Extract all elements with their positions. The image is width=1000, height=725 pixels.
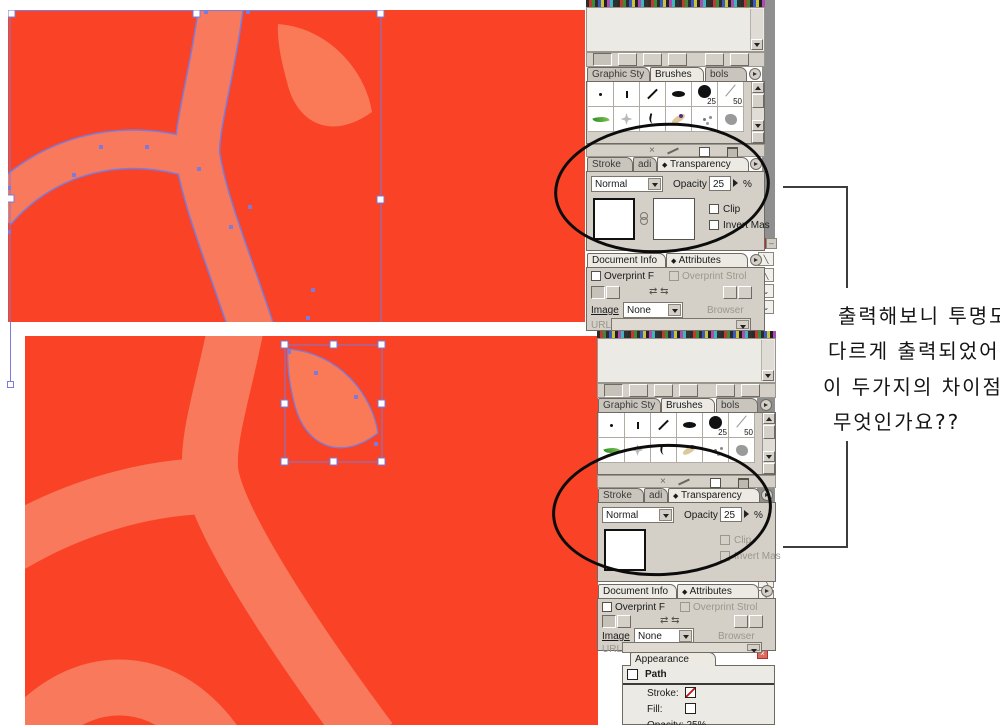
handwritten-note-line-1: 출력해보니 투명도가 <box>838 300 1000 329</box>
artboard-top-canvas <box>8 10 585 322</box>
brush-50pt[interactable]: 50 <box>729 413 755 438</box>
tab-label: Attributes <box>690 586 732 597</box>
swatches-panel-sliver <box>597 331 776 338</box>
brush-dash[interactable] <box>625 413 651 438</box>
tab-attributes[interactable]: ◆ Attributes <box>666 253 748 267</box>
chevron-down-icon[interactable] <box>736 320 749 329</box>
brushes-tab-row: Graphic Sty Brushes bols <box>586 67 765 81</box>
chevron-down-icon[interactable] <box>747 644 760 651</box>
url-select[interactable] <box>611 318 751 331</box>
new-item-icon[interactable] <box>705 53 724 66</box>
scroll-up-icon[interactable] <box>752 82 764 93</box>
scroll-track-end <box>752 132 764 143</box>
tab-label: Graphic Sty <box>592 69 644 80</box>
brushes-tab-row: Graphic Sty Brushes bols <box>597 398 776 412</box>
artboard-top <box>8 10 585 322</box>
tab-label: Graphic Sty <box>603 400 655 411</box>
chevron-down-icon[interactable] <box>668 304 681 316</box>
overprint-fill-checkbox[interactable] <box>591 271 601 281</box>
panel-cycle-icon: ◆ <box>682 589 687 596</box>
list-scrollbar[interactable] <box>750 9 763 50</box>
tab-graphic-styles[interactable]: Graphic Sty <box>587 67 650 81</box>
duplicate-style-icon[interactable] <box>593 53 612 66</box>
panel-button-row <box>586 52 765 67</box>
url-label: URL <box>591 320 611 331</box>
tab-brushes[interactable]: Brushes <box>661 398 715 412</box>
path-swatch <box>627 669 638 680</box>
overprint-fill-label: Overprint F <box>604 271 654 282</box>
brush-dash[interactable] <box>614 82 640 107</box>
panel-menu-icon[interactable] <box>750 254 762 266</box>
leaf-icon <box>592 113 609 125</box>
overprint-stroke-label: Overprint Strol <box>682 271 746 282</box>
overprint-fill-label: Overprint F <box>615 602 665 613</box>
brush-dot[interactable] <box>588 82 614 107</box>
show-center-icon[interactable] <box>602 615 616 628</box>
tab-appearance[interactable]: Appearance <box>630 652 716 666</box>
tab-label: Brushes <box>655 69 692 80</box>
fill-rule-icon[interactable] <box>738 286 752 299</box>
trash-icon[interactable] <box>741 384 760 397</box>
gradient-icon[interactable] <box>643 53 662 66</box>
brush-ellipse[interactable] <box>666 82 692 107</box>
brush-size-label: 50 <box>744 428 753 437</box>
brush-leaf[interactable] <box>588 107 614 132</box>
tab-label: Document Info <box>603 586 668 597</box>
opacity-value-label: Opacity: 25% <box>647 720 706 725</box>
gradient-icon[interactable] <box>654 384 673 397</box>
circle-icon <box>698 85 711 98</box>
attributes-tab-row: Document Info ◆ Attributes <box>597 584 776 598</box>
panel-menu-icon[interactable] <box>760 399 772 411</box>
image-map-value: None <box>627 305 651 316</box>
overprint-stroke-checkbox[interactable] <box>680 602 690 612</box>
appearance-panel: Appearance Path Stroke: Fill: Opacity: 2… <box>622 652 775 725</box>
scroll-down-icon[interactable] <box>751 39 763 50</box>
splatter-icon <box>725 114 737 125</box>
dash-icon <box>637 422 639 429</box>
appearance-row-fill[interactable]: Fill: <box>623 702 774 718</box>
tab-symbols[interactable]: bols <box>705 67 747 81</box>
swatch-icon[interactable] <box>629 384 648 397</box>
path-label: Path <box>645 669 667 680</box>
splatter-icon <box>736 445 748 456</box>
brush-25pt[interactable]: 25 <box>703 413 729 438</box>
url-label: URL <box>602 644 622 655</box>
panel-cycle-icon: ◆ <box>671 258 676 265</box>
scroll-track-end <box>763 463 775 474</box>
diagonal-line-icon <box>658 420 669 431</box>
tab-label: bols <box>721 400 739 411</box>
reverse-path-icons[interactable]: ⇄ ⇆ <box>660 615 680 626</box>
brush-line[interactable] <box>651 413 677 438</box>
swatch-icon[interactable] <box>618 53 637 66</box>
tab-label: Appearance <box>635 654 689 665</box>
handwritten-note-line-4: 무엇인가요?? <box>833 406 960 435</box>
brush-size-label: 50 <box>733 97 742 106</box>
overprint-stroke-label: Overprint Strol <box>693 602 757 613</box>
appearance-row-opacity[interactable]: Opacity: 25% <box>623 718 774 725</box>
selection-edge-extension <box>10 322 11 384</box>
reverse-path-icons[interactable]: ⇄ ⇆ <box>649 286 669 297</box>
scroll-thumb[interactable] <box>752 94 764 108</box>
brush-25pt[interactable]: 25 <box>692 82 718 107</box>
dash-icon <box>626 91 628 98</box>
styles-list-area[interactable] <box>586 7 765 52</box>
show-center-icon[interactable] <box>591 286 605 299</box>
tab-label: Attributes <box>679 255 721 266</box>
image-map-select[interactable]: None <box>623 302 683 318</box>
appearance-body: Path Stroke: Fill: Opacity: 25% <box>622 665 775 725</box>
ellipse-icon <box>683 422 696 428</box>
panel-menu-icon[interactable] <box>749 68 761 80</box>
handwritten-note-line-2: 다르게 출력되었어요.. <box>828 335 1000 364</box>
styles-list-area[interactable] <box>597 338 776 383</box>
stroke-none-swatch <box>685 687 696 698</box>
screenshot-stage: × – ╲ ╲ ⌄ ⌄ × ╲ ╲ ⌄ × Graphic Sty Brushe… <box>0 0 1000 725</box>
hide-center-icon[interactable] <box>606 286 620 299</box>
tab-attributes[interactable]: ◆ Attributes <box>677 584 759 598</box>
panel-button-row <box>597 383 776 398</box>
scroll-up-icon[interactable] <box>763 413 775 424</box>
minimize-icon[interactable]: – <box>766 238 777 249</box>
diagonal-line-icon <box>647 89 658 100</box>
brush-splatter[interactable] <box>718 107 744 132</box>
browser-button[interactable]: Browser <box>718 631 755 642</box>
fill-label: Fill: <box>647 704 663 715</box>
stroke-label: Stroke: <box>647 688 679 699</box>
feather-dot-icon <box>679 114 683 118</box>
selection-handle-bottom[interactable] <box>7 381 14 388</box>
overprint-stroke-checkbox[interactable] <box>669 271 679 281</box>
appearance-row-stroke[interactable]: Stroke: <box>623 686 774 702</box>
appearance-row-path[interactable]: Path <box>623 667 774 685</box>
image-map-label: Image <box>602 631 630 642</box>
tab-label: bols <box>710 69 728 80</box>
swatches-panel-sliver <box>586 0 765 7</box>
brush-50pt[interactable]: 50 <box>718 82 744 107</box>
bracket-vertical-lower <box>846 441 848 548</box>
brushes-scrollbar[interactable] <box>762 413 775 474</box>
panel-menu-icon[interactable] <box>761 585 773 597</box>
dot-icon <box>610 424 613 427</box>
scroll-thumb[interactable] <box>763 425 775 439</box>
duplicate-style-icon[interactable] <box>604 384 623 397</box>
attributes-panel-body: Overprint F Overprint Strol ⇄ ⇆ Image No… <box>586 267 765 331</box>
thin-line-icon <box>736 415 746 427</box>
brush-size-label: 25 <box>707 97 716 106</box>
thin-line-icon <box>725 84 735 96</box>
hide-center-icon[interactable] <box>617 615 631 628</box>
tab-graphic-styles[interactable]: Graphic Sty <box>598 398 661 412</box>
scroll-down-icon[interactable] <box>762 370 774 381</box>
tab-label: Brushes <box>666 400 703 411</box>
fill-rule-icon[interactable] <box>734 615 748 628</box>
fill-swatch <box>685 703 696 714</box>
scroll-down-icon[interactable] <box>763 451 775 462</box>
artboard-bottom <box>25 336 598 725</box>
grid-view-icon[interactable] <box>668 53 687 66</box>
flower-icon <box>621 113 633 125</box>
tab-document-info[interactable]: Document Info <box>598 584 677 598</box>
attributes-tab-row: Document Info ◆ Attributes <box>586 253 765 267</box>
brush-ellipse[interactable] <box>677 413 703 438</box>
circle-icon <box>709 416 722 429</box>
fill-rule-icon[interactable] <box>723 286 737 299</box>
bracket-vertical-upper <box>846 186 848 288</box>
brush-dot[interactable] <box>599 413 625 438</box>
tab-label: Document Info <box>592 255 657 266</box>
overprint-fill-checkbox[interactable] <box>602 602 612 612</box>
dot-icon <box>599 93 602 96</box>
tab-symbols[interactable]: bols <box>716 398 758 412</box>
tab-brushes[interactable]: Brushes <box>650 67 704 81</box>
image-map-value: None <box>638 631 662 642</box>
chevron-down-icon[interactable] <box>679 630 692 642</box>
browser-button[interactable]: Browser <box>707 305 744 316</box>
brushes-scrollbar[interactable] <box>751 82 764 143</box>
tab-document-info[interactable]: Document Info <box>587 253 666 267</box>
attributes-panel-body: Overprint F Overprint Strol ⇄ ⇆ Image No… <box>597 598 776 651</box>
scatter-dots-icon <box>703 118 706 121</box>
new-item-icon[interactable] <box>716 384 735 397</box>
bracket-bottom-line <box>783 546 848 548</box>
handwritten-note-line-3: 이 두가지의 차이점이 <box>823 371 1000 400</box>
list-scrollbar[interactable] <box>761 340 774 381</box>
grid-view-icon[interactable] <box>679 384 698 397</box>
ellipse-icon <box>672 91 685 97</box>
artboard-bottom-canvas <box>25 336 598 725</box>
bracket-top-line <box>783 186 848 188</box>
trash-icon[interactable] <box>730 53 749 66</box>
scroll-down-icon[interactable] <box>752 120 764 131</box>
fill-rule-icon[interactable] <box>749 615 763 628</box>
brush-size-label: 25 <box>718 428 727 437</box>
brush-line[interactable] <box>640 82 666 107</box>
image-map-label: Image <box>591 305 619 316</box>
